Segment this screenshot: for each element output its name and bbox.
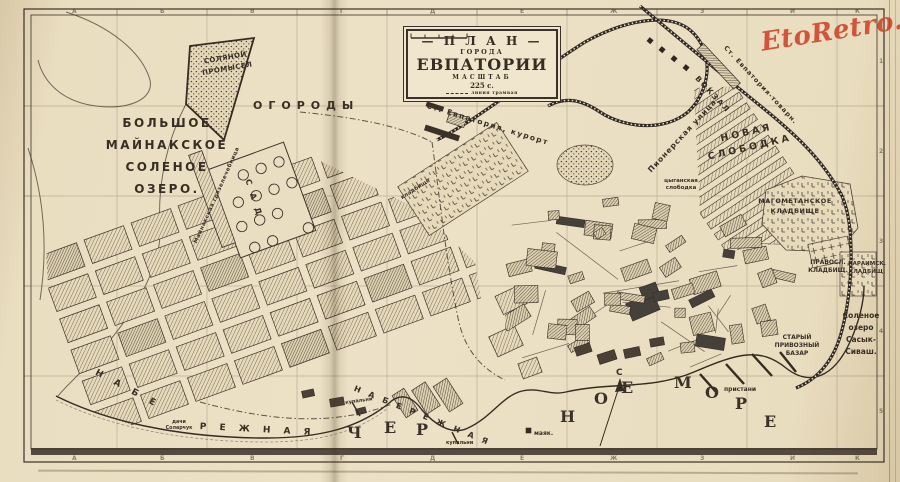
sea-name-letter: М [674,373,692,392]
grid-letter: А [72,8,77,15]
stary-privozny-bazar-label: СТАРЫЙ ПРИВОЗНЫЙ БАЗАР [770,334,824,358]
sea-name-letter: Р [416,420,428,439]
grid-letter: Д [430,8,435,15]
grid-letter: 1 [879,58,883,65]
title-cartouche-inner: — П Л А Н — ГОРОДА ЕВПАТОРИИ МАСШТАБ 225… [406,29,558,99]
grid-letter: Ж [610,8,617,15]
grid-letter: 3 [879,238,883,245]
naberezhnaya-west-1-label: Н А Б Е [93,368,162,411]
map-title-city: ЕВПАТОРИИ [408,56,556,73]
title-cartouche: — П Л А Н — ГОРОДА ЕВПАТОРИИ МАСШТАБ 225… [403,26,561,102]
novaya-slobodka-label: НОВАЯ СЛОБОДКА [700,115,796,165]
sea-name-letter: Ч [347,423,362,442]
grid-letter: Г [340,8,344,15]
dachi-label: дачи Соларчук [158,420,200,432]
karaimskoe-kladbishche-label: КАРАИМСК. КЛАДБИЩ. [846,260,888,276]
tram-line-sample [446,93,468,94]
grid-letter: З [700,8,704,15]
grid-letter: В [250,8,255,15]
kupalni-west-label: купальни [345,396,373,407]
grid-letter: И [790,8,795,15]
grid-letter: Г [340,455,344,462]
grid-letter: А [72,455,77,462]
scale-bar [408,31,470,41]
st-evpatoriya-tovarn-label: Ст. Евпатория-товарн. [722,44,799,126]
ozero-sasyk-sivash-label: Соленое озеро Сасык- Сиваш. [838,310,884,358]
scanned-map-page: БОЛЬШОЕ МАЙНАКСКОЕ СОЛЕНОЕ ОЗЕРО.СОЛЯНОЙ… [0,0,900,482]
grid-letter: Б [160,455,165,462]
grid-letter: Б [160,8,165,15]
grid-letter: К [855,455,860,462]
grid-letter: Е [520,8,524,15]
grid-letter: Ж [610,455,617,462]
tsyganskaya-slobodka-label: цыганская слободка [652,178,710,192]
scale-value: 225 с. [470,81,494,90]
grid-letter: 5 [879,408,883,415]
grid-letter: В [250,455,255,462]
pristani-label: пристани [724,386,756,394]
st-evpatoriya-kurort-label: Ст. Евпатория, курорт [425,101,550,147]
solyanoy-promysel-label: СОЛЯНОЙ ПРОМЫСЕЛ [196,48,257,80]
mayak-label: маяк. [534,430,553,438]
grid-letter: 4 [879,328,883,335]
naberezhnaya-west-2-label: Р Е Ж Н А Я [199,422,315,439]
grid-letter: З [700,455,704,462]
sea-name-letter: Н [560,407,575,426]
sad-label: С А Д [242,178,264,219]
sea-name-letter: Е [764,412,776,431]
grid-letter: Е [520,455,524,462]
sea-name-letter: О [705,383,719,402]
map-scale-word: МАСШТАБ [408,74,556,81]
sea-name-letter: Р [735,394,747,413]
grid-letter: 2 [879,148,883,155]
magometanskoe-kladbishche-label: МАГОМЕТАНСКОЕ КЛАДБИЩЕ [752,197,838,216]
sea-name-letter: Е [384,418,396,437]
grid-letter: И [790,455,795,462]
tram-legend-label: линия трамвая [471,91,518,96]
sea-name-letter: Е [621,378,633,397]
grid-letter: Д [430,455,435,462]
kladbishche-u-stantsii-label: кладбище [400,178,432,202]
kupalni-east-label: купальни [446,440,473,447]
ogorody-label: ОГОРОДЫ [253,99,359,112]
pravoslavnoe-kladbishche-label: ПРАВОСЛ. КЛАДБИЩ. [806,259,850,275]
sea-name-letter: О [594,389,608,408]
